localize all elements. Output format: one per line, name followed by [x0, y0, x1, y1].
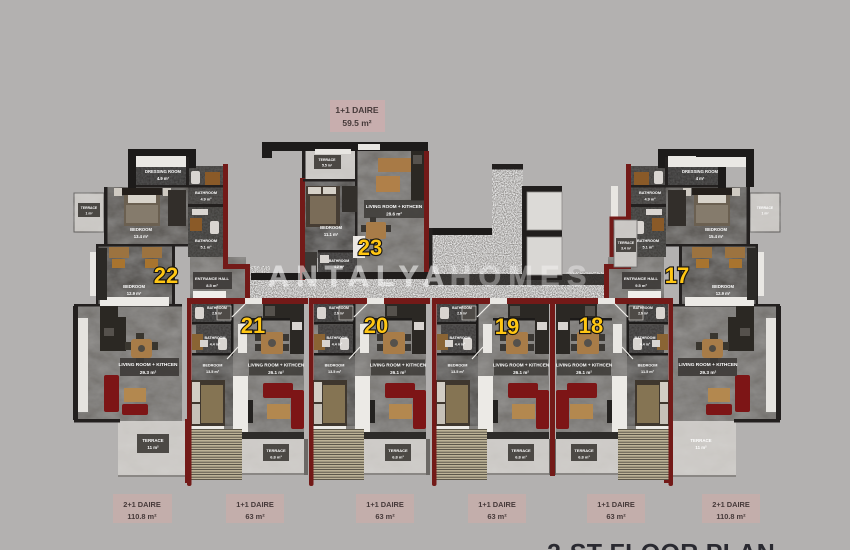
svg-text:LIVING ROOM + KITHCEN: LIVING ROOM + KITHCEN — [118, 362, 178, 368]
svg-text:23: 23 — [358, 235, 382, 260]
svg-text:13.5 m²: 13.5 m² — [451, 370, 465, 374]
svg-text:BATHROOM: BATHROOM — [452, 306, 472, 310]
svg-text:13.5 m²: 13.5 m² — [206, 370, 220, 374]
svg-text:BATHROOM: BATHROOM — [207, 306, 227, 310]
svg-text:4.4 m²: 4.4 m² — [332, 343, 343, 347]
svg-text:20: 20 — [364, 313, 388, 338]
svg-text:ENTRANCE HALL: ENTRANCE HALL — [195, 276, 230, 281]
svg-text:1 m²: 1 m² — [762, 212, 770, 216]
svg-text:TERRACE: TERRACE — [319, 158, 337, 162]
svg-text:4.9 m²: 4.9 m² — [157, 176, 170, 181]
svg-text:3.4 m²: 3.4 m² — [621, 247, 632, 251]
svg-text:2.6 m²: 2.6 m² — [638, 312, 649, 316]
svg-text:63 m²: 63 m² — [375, 512, 395, 521]
svg-text:13.4 m²: 13.4 m² — [134, 234, 149, 239]
svg-text:15.4 m²: 15.4 m² — [709, 234, 724, 239]
svg-text:BEDROOM: BEDROOM — [130, 227, 152, 232]
svg-text:BATHROOM: BATHROOM — [195, 191, 217, 195]
svg-text:BATHROOM: BATHROOM — [327, 336, 348, 340]
svg-text:DRESSING ROOM: DRESSING ROOM — [682, 169, 719, 174]
svg-text:4.4 m²: 4.4 m² — [210, 343, 221, 347]
svg-text:BEDROOM: BEDROOM — [448, 364, 468, 368]
svg-text:ANTALYA: ANTALYA — [268, 261, 452, 293]
svg-text:1+1 DAIRE: 1+1 DAIRE — [366, 500, 404, 509]
svg-text:BATHROOM: BATHROOM — [450, 336, 471, 340]
svg-text:2-ST FLOOR PLAN: 2-ST FLOOR PLAN — [547, 540, 775, 550]
svg-text:6.8 m²: 6.8 m² — [515, 455, 527, 460]
svg-text:4.9 m²: 4.9 m² — [201, 198, 213, 202]
svg-text:26.1 m²: 26.1 m² — [390, 370, 406, 375]
svg-text:26.1 m²: 26.1 m² — [576, 370, 592, 375]
svg-text:22: 22 — [154, 263, 178, 288]
svg-text:TERRACE: TERRACE — [757, 206, 774, 210]
svg-text:110.8 m²: 110.8 m² — [127, 512, 157, 521]
svg-text:13.5 m²: 13.5 m² — [328, 370, 342, 374]
svg-text:4.4 m²: 4.4 m² — [455, 343, 466, 347]
svg-text:4.9 m²: 4.9 m² — [645, 198, 657, 202]
svg-text:6.8 m²: 6.8 m² — [392, 455, 404, 460]
svg-text:2.6 m²: 2.6 m² — [212, 312, 223, 316]
svg-text:ENTRANCE HALL: ENTRANCE HALL — [624, 276, 659, 281]
svg-text:2+1 DAIRE: 2+1 DAIRE — [123, 500, 161, 509]
svg-text:HOMES: HOMES — [450, 261, 594, 293]
svg-text:4.4 m²: 4.4 m² — [640, 343, 651, 347]
svg-text:1+1 DAIRE: 1+1 DAIRE — [478, 500, 516, 509]
svg-text:TERRACE: TERRACE — [690, 438, 711, 443]
svg-text:26.1 m²: 26.1 m² — [268, 370, 284, 375]
svg-text:BATHROOM: BATHROOM — [205, 336, 226, 340]
svg-text:BATHROOM: BATHROOM — [195, 239, 217, 243]
svg-text:28.6 m²: 28.6 m² — [386, 212, 402, 217]
svg-text:29.3 m²: 29.3 m² — [140, 370, 157, 376]
svg-text:DRESSING ROOM: DRESSING ROOM — [145, 169, 182, 174]
svg-text:BEDROOM: BEDROOM — [638, 364, 658, 368]
svg-text:BATHROOM: BATHROOM — [633, 306, 653, 310]
svg-text:1+1 DAIRE: 1+1 DAIRE — [597, 500, 635, 509]
svg-text:LIVING ROOM + KITHCEN: LIVING ROOM + KITHCEN — [366, 204, 423, 209]
svg-text:BEDROOM: BEDROOM — [705, 227, 727, 232]
svg-text:1 m²: 1 m² — [86, 212, 94, 216]
svg-text:26.1 m²: 26.1 m² — [513, 370, 529, 375]
svg-text:5.5 m²: 5.5 m² — [322, 164, 333, 168]
svg-text:8.5 m²: 8.5 m² — [206, 283, 218, 288]
svg-text:6.8 m²: 6.8 m² — [270, 455, 282, 460]
svg-text:TERRACE: TERRACE — [574, 448, 594, 453]
svg-text:LIVING ROOM + KITHCEN: LIVING ROOM + KITHCEN — [493, 363, 550, 368]
svg-text:TERRACE: TERRACE — [388, 448, 408, 453]
svg-text:BATHROOM: BATHROOM — [639, 191, 661, 195]
svg-text:BEDROOM: BEDROOM — [712, 284, 734, 289]
svg-text:6.8 m²: 6.8 m² — [578, 455, 590, 460]
svg-text:5.1 m²: 5.1 m² — [201, 246, 213, 250]
svg-text:21: 21 — [241, 313, 265, 338]
svg-text:17: 17 — [665, 263, 689, 288]
svg-text:63 m²: 63 m² — [606, 512, 626, 521]
svg-text:63 m²: 63 m² — [245, 512, 265, 521]
svg-text:29.3 m²: 29.3 m² — [700, 370, 717, 376]
svg-text:1+1 DAIRE: 1+1 DAIRE — [236, 500, 274, 509]
svg-text:12.9 m²: 12.9 m² — [716, 291, 731, 296]
svg-text:2.6 m²: 2.6 m² — [457, 312, 468, 316]
svg-text:2.6 m²: 2.6 m² — [334, 312, 345, 316]
svg-text:BATHROOM: BATHROOM — [635, 336, 656, 340]
svg-text:9.5 m²: 9.5 m² — [635, 283, 647, 288]
svg-text:TERRACE: TERRACE — [618, 241, 635, 245]
svg-text:LIVING ROOM + KITHCEN: LIVING ROOM + KITHCEN — [556, 363, 613, 368]
svg-text:12.9 m²: 12.9 m² — [127, 291, 142, 296]
svg-text:LIVING ROOM + KITHCEN: LIVING ROOM + KITHCEN — [370, 363, 427, 368]
svg-text:11 m²: 11 m² — [147, 445, 159, 450]
svg-text:1+1 DAIRE: 1+1 DAIRE — [335, 105, 379, 115]
svg-text:11 m²: 11 m² — [695, 445, 707, 450]
svg-text:63 m²: 63 m² — [487, 512, 507, 521]
svg-text:2+1 DAIRE: 2+1 DAIRE — [712, 500, 750, 509]
svg-text:5.1 m²: 5.1 m² — [643, 246, 655, 250]
svg-text:TERRACE: TERRACE — [266, 448, 286, 453]
svg-text:11.1 m²: 11.1 m² — [324, 232, 339, 237]
svg-text:BEDROOM: BEDROOM — [325, 364, 345, 368]
svg-text:BATHROOM: BATHROOM — [637, 239, 659, 243]
svg-text:LIVING ROOM + KITHCEN: LIVING ROOM + KITHCEN — [248, 363, 305, 368]
svg-text:BATHROOM: BATHROOM — [329, 306, 349, 310]
svg-text:19: 19 — [495, 314, 519, 339]
svg-text:BEDROOM: BEDROOM — [203, 364, 223, 368]
svg-text:TERRACE: TERRACE — [511, 448, 531, 453]
svg-text:4 m²: 4 m² — [696, 176, 705, 181]
svg-text:59.5 m²: 59.5 m² — [342, 118, 371, 128]
svg-text:BEDROOM: BEDROOM — [123, 284, 145, 289]
svg-text:110.8 m²: 110.8 m² — [716, 512, 746, 521]
svg-text:TERRACE: TERRACE — [81, 206, 98, 210]
svg-text:TERRACE: TERRACE — [142, 438, 163, 443]
svg-text:18: 18 — [579, 313, 603, 338]
svg-text:LIVING ROOM + KITHCEN: LIVING ROOM + KITHCEN — [678, 362, 738, 368]
svg-text:BEDROOM: BEDROOM — [320, 225, 342, 230]
svg-text:11.5 m²: 11.5 m² — [641, 370, 655, 374]
